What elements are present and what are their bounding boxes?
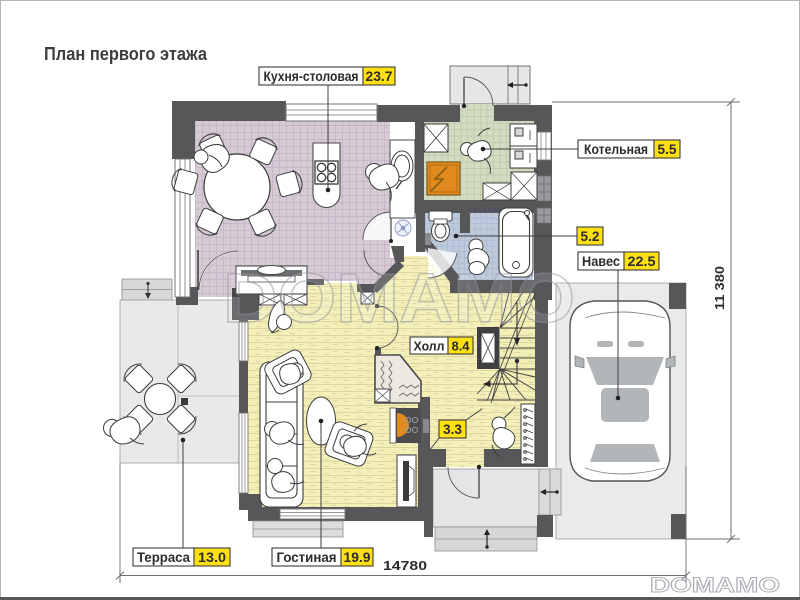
svg-text:DOMAMO: DOMAMO bbox=[650, 574, 780, 597]
svg-text:Терраса: Терраса bbox=[137, 550, 190, 565]
svg-text:22.5: 22.5 bbox=[628, 254, 657, 269]
svg-text:Гостиная: Гостиная bbox=[277, 550, 337, 565]
svg-text:Навес: Навес bbox=[582, 254, 620, 269]
svg-text:5.2: 5.2 bbox=[581, 229, 600, 244]
svg-text:Котельная: Котельная bbox=[584, 142, 648, 157]
svg-text:13.0: 13.0 bbox=[198, 550, 226, 565]
svg-text:DOMAMO: DOMAMO bbox=[223, 259, 575, 337]
svg-text:14780: 14780 bbox=[383, 558, 427, 573]
svg-text:8.4: 8.4 bbox=[452, 339, 471, 354]
svg-text:Холл: Холл bbox=[414, 339, 445, 354]
svg-text:11 380: 11 380 bbox=[712, 266, 727, 310]
svg-text:19.9: 19.9 bbox=[344, 550, 371, 565]
svg-text:План первого этажа: План первого этажа bbox=[44, 44, 208, 64]
svg-text:Кухня-столовая: Кухня-столовая bbox=[264, 69, 359, 84]
svg-text:3.3: 3.3 bbox=[443, 422, 462, 437]
svg-text:23.7: 23.7 bbox=[366, 69, 393, 84]
svg-text:5.5: 5.5 bbox=[658, 142, 677, 157]
